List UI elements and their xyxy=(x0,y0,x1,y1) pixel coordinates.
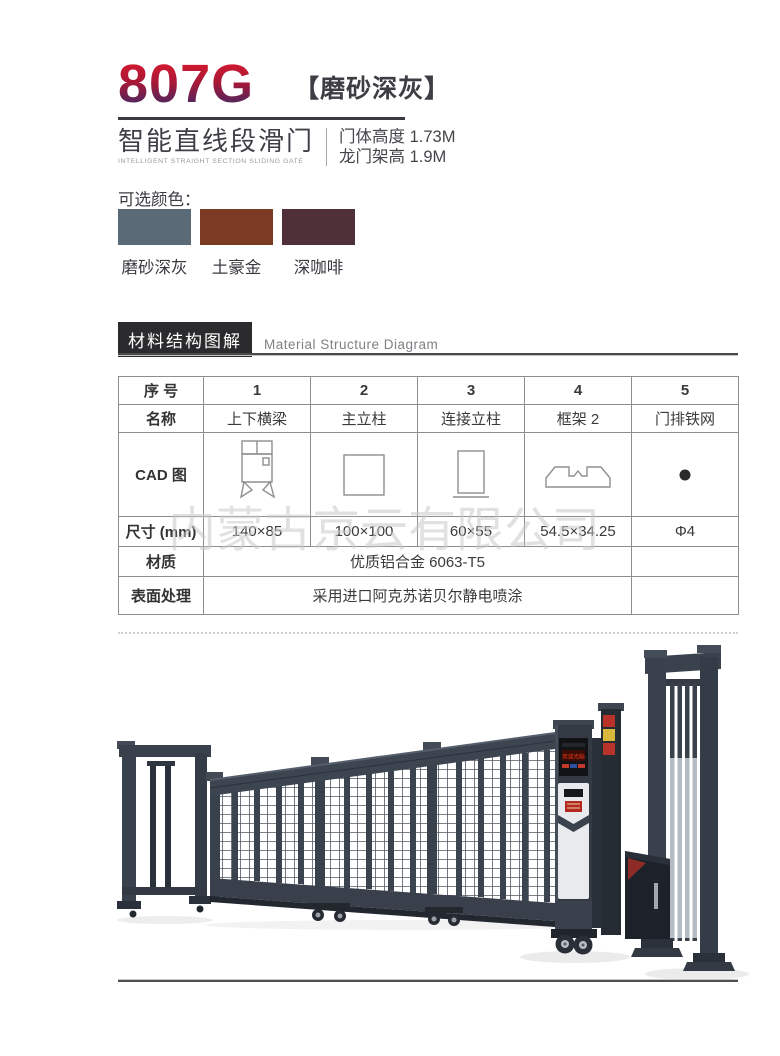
cad-cell xyxy=(525,433,632,517)
index-cell: 3 xyxy=(418,377,525,405)
table-row-name: 名称 上下横梁 主立柱 连接立柱 框架 2 门排铁网 xyxy=(119,405,739,433)
model-number: 807G xyxy=(118,56,254,112)
name-cell: 主立柱 xyxy=(311,405,418,433)
head-wheels xyxy=(551,929,597,955)
header-specs: 门体高度 1.73M 龙门架高 1.9M xyxy=(339,126,455,167)
warning-sticker-red xyxy=(603,743,615,755)
bottom-rule xyxy=(118,979,738,982)
swatch-item: 深咖啡 xyxy=(282,209,355,278)
row-label: 材质 xyxy=(119,547,204,577)
product-name-en: INTELLIGENT STRAIGHT SECTION SLIDING GAT… xyxy=(118,158,314,165)
index-cell: 5 xyxy=(632,377,739,405)
motor-box xyxy=(625,851,670,939)
size-cell: 54.5×34.25 xyxy=(525,517,632,547)
table-row-index: 序 号 1 2 3 4 5 xyxy=(119,377,739,405)
warning-sticker-yellow xyxy=(603,729,615,741)
dotted-separator xyxy=(118,632,738,634)
mesh-wire-dot-icon xyxy=(677,467,693,483)
row-label: 尺寸 (mm) xyxy=(119,517,204,547)
color-swatches: 磨砂深灰 土豪金 深咖啡 xyxy=(118,209,355,278)
product-name-cn: 智能直线段滑门 xyxy=(118,126,314,156)
cad-cell xyxy=(311,433,418,517)
section-underline xyxy=(118,353,738,356)
model-variant: 【磨砂深灰】 xyxy=(294,69,450,112)
table-row-cad: CAD 图 xyxy=(119,433,739,517)
color-options-label: 可选颜色： xyxy=(118,186,201,210)
square-post-icon xyxy=(341,452,387,498)
spec-table: 序 号 1 2 3 4 5 名称 上下横梁 主立柱 连接立柱 框架 2 门排铁网… xyxy=(118,376,739,615)
empty-cell xyxy=(632,547,739,577)
control-panel xyxy=(558,783,589,899)
rear-post xyxy=(592,703,624,935)
size-cell: 100×100 xyxy=(311,517,418,547)
control-head: 欢迎光临 xyxy=(551,720,597,955)
connect-post-icon xyxy=(450,449,492,501)
section-header: 材料结构图解 Material Structure Diagram xyxy=(118,322,438,357)
led-text: 欢迎光临 xyxy=(562,753,585,761)
index-cell: 4 xyxy=(525,377,632,405)
swatch-item: 土豪金 xyxy=(200,209,273,278)
gate-body xyxy=(206,733,555,927)
color-swatch-gray xyxy=(118,209,191,245)
product-sheet-page: { "header": { "model": "807G", "variant"… xyxy=(0,0,780,1056)
swatch-label: 磨砂深灰 xyxy=(118,254,191,278)
surface-cell: 采用进口阿克苏诺贝尔静电喷涂 xyxy=(204,577,632,615)
swatch-item: 磨砂深灰 xyxy=(118,209,191,278)
table-row-material: 材质 优质铝合金 6063-T5 xyxy=(119,547,739,577)
material-cell: 优质铝合金 6063-T5 xyxy=(204,547,632,577)
led-display: 欢迎光临 xyxy=(559,738,588,776)
beam-profile-icon xyxy=(234,438,280,512)
header: 807G 【磨砂深灰】 xyxy=(118,56,450,112)
swatch-label: 深咖啡 xyxy=(282,254,355,278)
name-cell: 连接立柱 xyxy=(418,405,525,433)
spec-frame-height: 龙门架高 1.9M xyxy=(339,147,455,167)
color-swatch-gold xyxy=(200,209,273,245)
row-label: CAD 图 xyxy=(119,433,204,517)
material-structure-table: 序 号 1 2 3 4 5 名称 上下横梁 主立柱 连接立柱 框架 2 门排铁网… xyxy=(118,376,739,615)
section-title-cn: 材料结构图解 xyxy=(118,322,252,357)
name-cell: 框架 2 xyxy=(525,405,632,433)
name-cell: 门排铁网 xyxy=(632,405,739,433)
product-gate-photo: 欢迎光临 xyxy=(105,643,750,988)
row-label: 表面处理 xyxy=(119,577,204,615)
spec-door-height: 门体高度 1.73M xyxy=(339,127,455,147)
size-cell: Φ4 xyxy=(632,517,739,547)
vertical-divider xyxy=(326,128,327,166)
table-row-size: 尺寸 (mm) 140×85 100×100 60×55 54.5×34.25 … xyxy=(119,517,739,547)
gantry-bars xyxy=(670,683,697,941)
index-cell: 1 xyxy=(204,377,311,405)
index-cell: 2 xyxy=(311,377,418,405)
swatch-label: 土豪金 xyxy=(200,254,273,278)
cad-cell xyxy=(632,433,739,517)
size-cell: 60×55 xyxy=(418,517,525,547)
size-cell: 140×85 xyxy=(204,517,311,547)
empty-cell xyxy=(632,577,739,615)
left-guide-frame xyxy=(117,741,211,918)
name-cell: 上下横梁 xyxy=(204,405,311,433)
product-title-block: 智能直线段滑门 INTELLIGENT STRAIGHT SECTION SLI… xyxy=(118,126,455,167)
header-underline xyxy=(118,117,405,120)
frame2-profile-icon xyxy=(542,458,614,492)
product-name-block: 智能直线段滑门 INTELLIGENT STRAIGHT SECTION SLI… xyxy=(118,126,314,165)
row-label: 序 号 xyxy=(119,377,204,405)
table-row-surface: 表面处理 采用进口阿克苏诺贝尔静电喷涂 xyxy=(119,577,739,615)
cad-cell xyxy=(418,433,525,517)
warning-sticker-red xyxy=(603,715,615,727)
row-label: 名称 xyxy=(119,405,204,433)
cad-cell xyxy=(204,433,311,517)
color-swatch-coffee xyxy=(282,209,355,245)
